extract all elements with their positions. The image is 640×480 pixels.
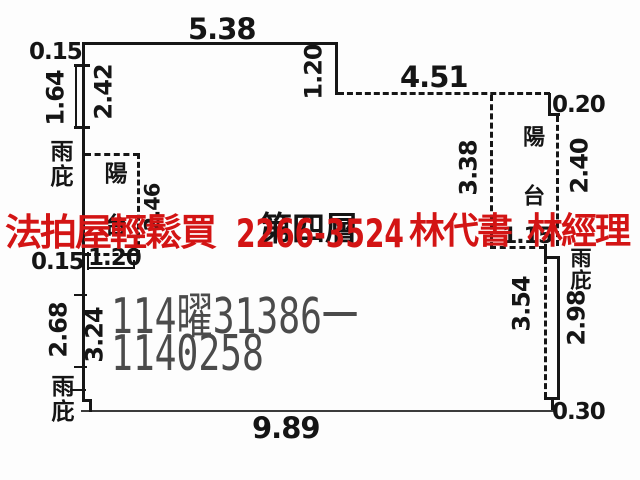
dim-bottom-right-step: 0.30 bbox=[552, 401, 605, 424]
canopy-top-left-line bbox=[75, 66, 77, 129]
dim-right-canopy-height-text: 2.98 bbox=[565, 290, 589, 345]
dim-left-wall-lower: 3.24 bbox=[80, 300, 110, 370]
wall-left-foot-vertical bbox=[89, 399, 92, 412]
wall-right-corner-vertical bbox=[548, 93, 551, 115]
dim-top-right-edge: 4.51 bbox=[400, 63, 468, 92]
dim-left-canopy-lower-height-text: 2.68 bbox=[47, 302, 71, 357]
overlay-ad-text-right: 林經理 bbox=[527, 214, 629, 250]
dim-right-wall-lower-text: 3.54 bbox=[510, 276, 534, 331]
dim-left-wall-upper-text: 2.42 bbox=[92, 64, 116, 119]
dim-left-wall-upper: 2.42 bbox=[86, 58, 122, 125]
canopy-bottom-left-tick-1 bbox=[74, 294, 87, 296]
wall-right-outer-edge bbox=[557, 258, 560, 400]
overlay-ad-text-left: 法拍屋輕鬆買 bbox=[5, 214, 215, 251]
dim-left-canopy-lower-height: 2.68 bbox=[46, 296, 72, 364]
dim-top-left-offset: 0.15 bbox=[29, 41, 82, 64]
dim-right-balcony-side-text: 2.40 bbox=[568, 138, 592, 193]
dim-right-balcony-height: 3.38 bbox=[451, 135, 487, 200]
canopy-right-inner-dashed bbox=[544, 258, 547, 398]
canopy-bottom-left-label: 雨庇 bbox=[48, 374, 71, 424]
canopy-right-label: 雨庇 bbox=[569, 247, 590, 291]
balcony-left-top-dashed bbox=[85, 153, 139, 156]
canopy-top-left-tick-bottom bbox=[74, 126, 90, 129]
overlay-ad-text-mid: 林代書 bbox=[409, 214, 511, 250]
dim-bottom-edge: 9.89 bbox=[252, 414, 320, 443]
dim-right-step: 0.20 bbox=[552, 94, 605, 117]
dim-right-wall-lower: 3.54 bbox=[505, 273, 538, 335]
overlay-ad-phone: 2266-3524 bbox=[236, 215, 404, 254]
dim-right-balcony-height-text: 3.38 bbox=[457, 140, 481, 195]
dim-left-wall-lower-text: 3.24 bbox=[83, 307, 107, 362]
floor-plan-canvas: 5.38 0.15 4.51 0.20 1.15 0.15 1.20 0.30 … bbox=[0, 0, 640, 480]
dim-top-step-text: 1.20 bbox=[302, 44, 326, 99]
dim-left-canopy-height: 1.64 bbox=[41, 69, 71, 127]
dim-right-balcony-side: 2.40 bbox=[563, 134, 597, 198]
wall-top-step-down bbox=[335, 42, 338, 95]
canopy-top-left-label: 雨庇 bbox=[47, 139, 70, 189]
dim-top-step: 1.20 bbox=[297, 44, 331, 99]
watermark-line-2: 1140258 bbox=[111, 329, 264, 378]
dim-left-lower-offset: 0.15 bbox=[31, 251, 84, 274]
dim-left-canopy-height-text: 1.64 bbox=[44, 70, 68, 125]
dim-right-canopy-height: 2.98 bbox=[561, 286, 593, 350]
dim-top-edge: 5.38 bbox=[188, 15, 256, 44]
